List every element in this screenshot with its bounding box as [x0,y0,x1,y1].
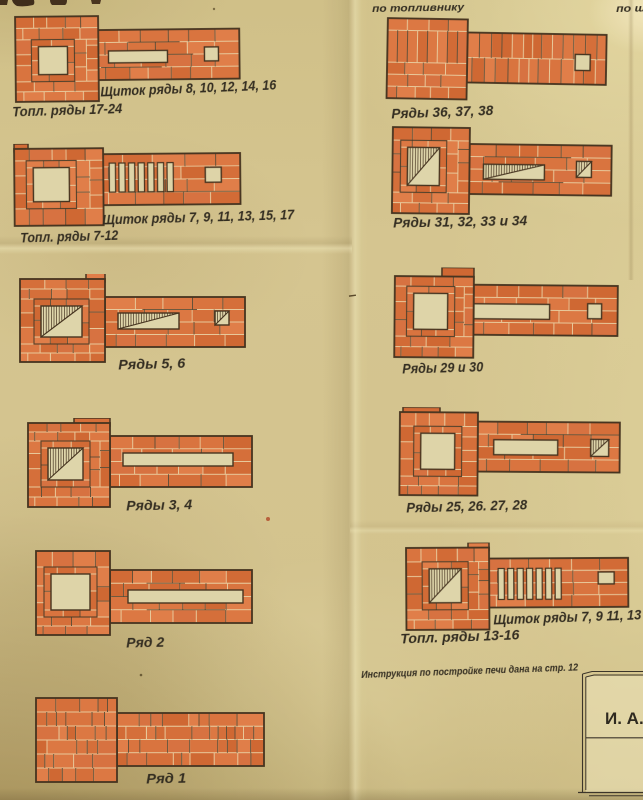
svg-text:Ряд 1: Ряд 1 [146,769,187,786]
svg-text:по щ: по щ [616,4,643,16]
svg-text:Топл. ряды 17-24: Топл. ряды 17-24 [12,100,123,119]
svg-text:Ряды 5, 6: Ряды 5, 6 [118,355,186,373]
svg-text:Ряд 2: Ряд 2 [126,633,165,650]
svg-text:Ряды 25, 26. 27, 28: Ряды 25, 26. 27, 28 [406,496,528,515]
svg-text:Щиток ряды 7, 9, 11, 13, 15, 1: Щиток ряды 7, 9, 11, 13, 15, 17 [102,206,295,227]
svg-text:Топл. ряды 7-12: Топл. ряды 7-12 [20,227,119,246]
svg-text:Ряды 36, 37, 38: Ряды 36, 37, 38 [391,102,494,122]
svg-text:Ряды 31, 32, 33 и 34: Ряды 31, 32, 33 и 34 [393,212,527,230]
svg-text:Ряды 29 и 30: Ряды 29 и 30 [402,358,484,376]
svg-text:Топл. ряды 13-16: Топл. ряды 13-16 [400,626,520,646]
svg-text:И. А.: И. А. [605,709,643,728]
svg-text:Ряды 3, 4: Ряды 3, 4 [126,496,193,513]
